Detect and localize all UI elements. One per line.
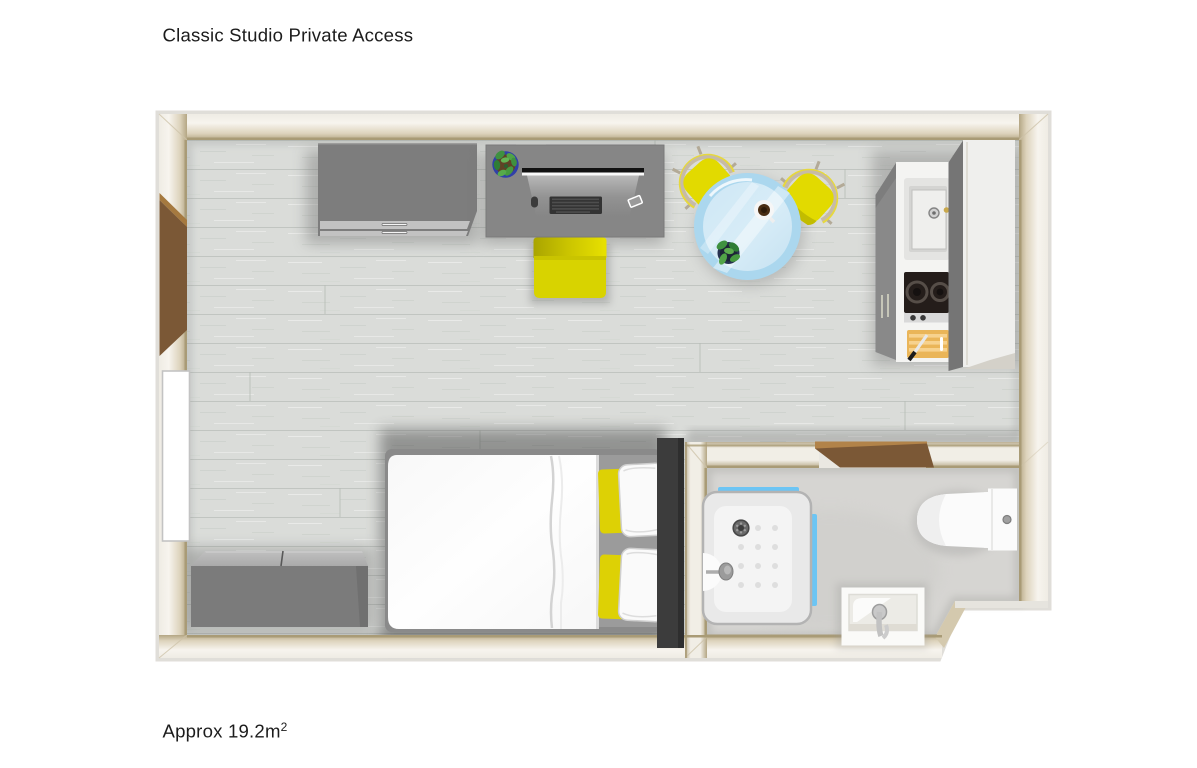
svg-text:Approx 19.2m2: Approx 19.2m2 <box>163 720 288 742</box>
svg-text:Classic Studio Private Access: Classic Studio Private Access <box>163 25 414 46</box>
